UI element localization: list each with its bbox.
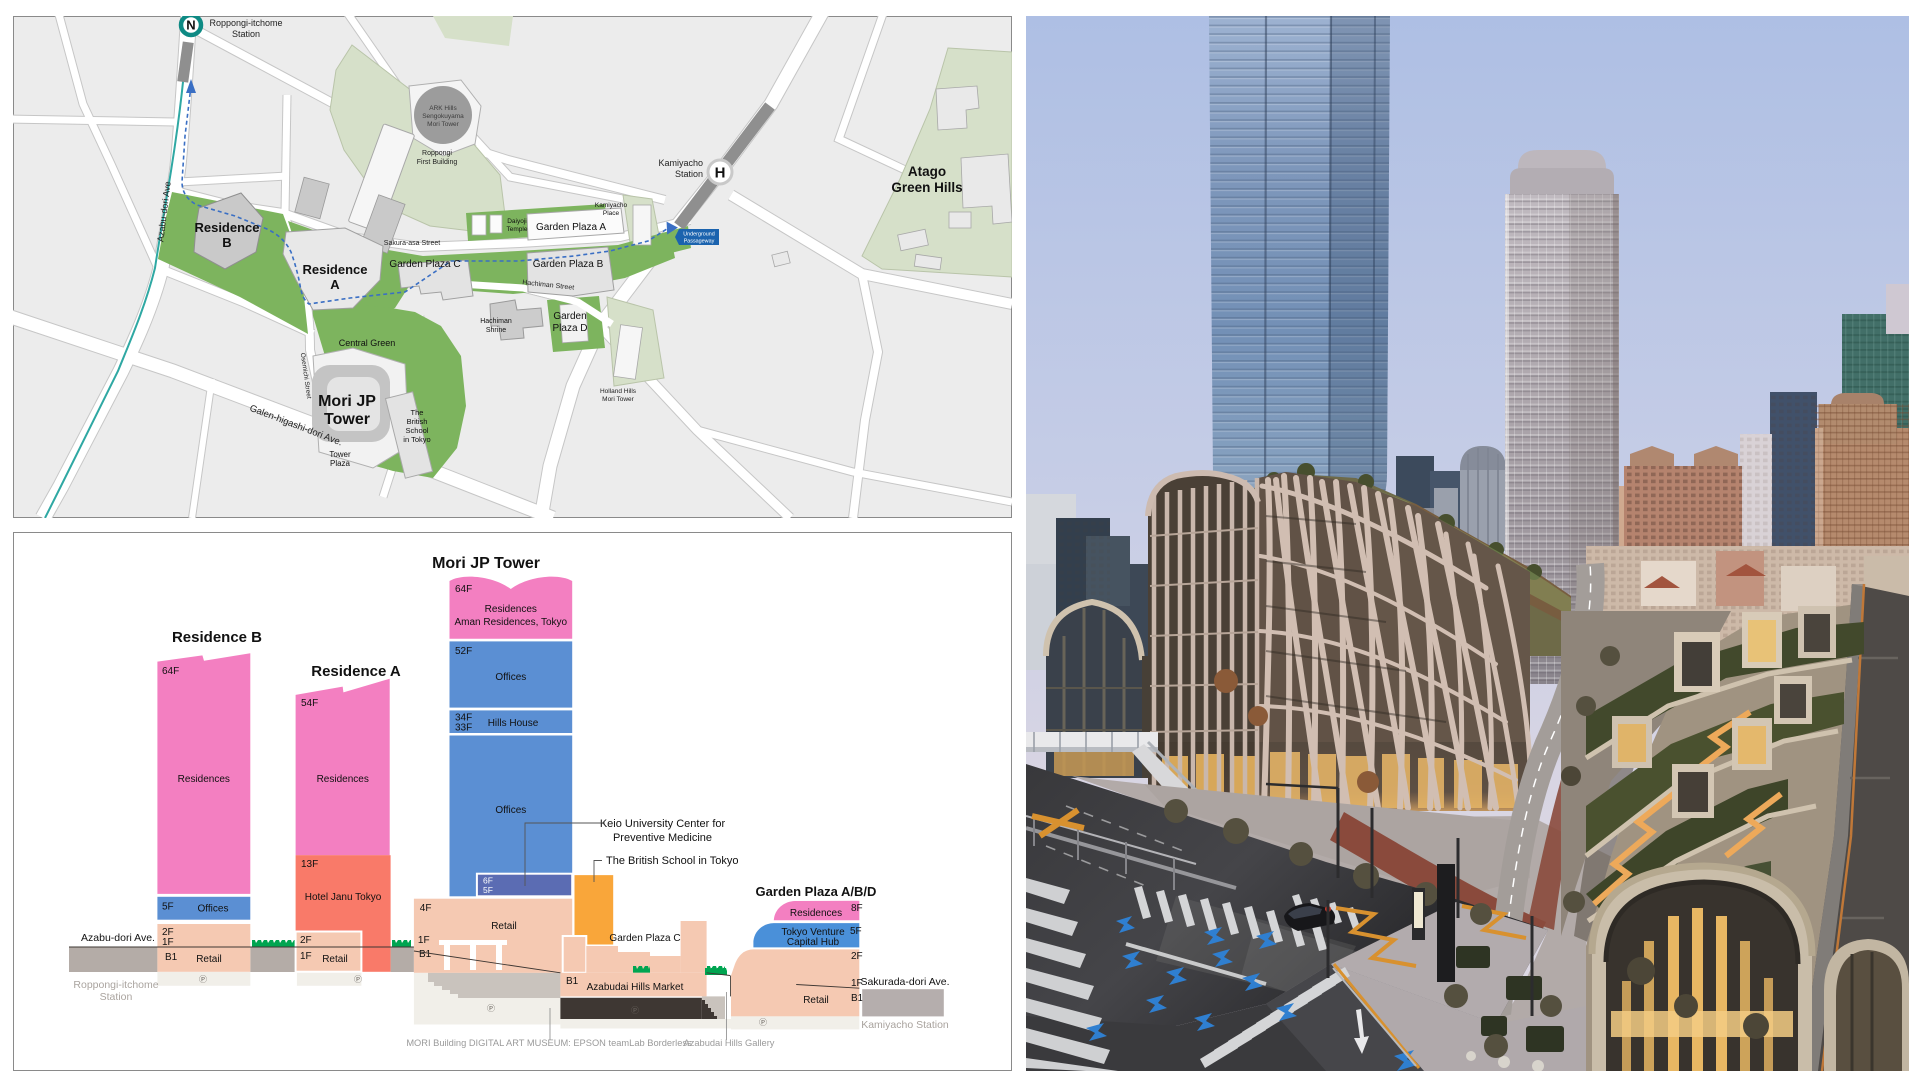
svg-text:B1: B1	[419, 949, 432, 960]
svg-text:Garden: Garden	[553, 311, 586, 322]
svg-text:Azabudai Hills Gallery: Azabudai Hills Gallery	[684, 1038, 775, 1048]
svg-text:A: A	[330, 277, 340, 292]
svg-text:Shrine: Shrine	[486, 327, 506, 334]
svg-text:1F: 1F	[300, 951, 312, 962]
svg-text:Offices: Offices	[198, 904, 229, 915]
svg-text:Residences: Residences	[317, 774, 369, 785]
svg-text:Garden Plaza C: Garden Plaza C	[389, 259, 460, 270]
svg-text:Mori Tower: Mori Tower	[427, 121, 460, 128]
svg-text:Retail: Retail	[491, 921, 517, 932]
svg-text:Offices: Offices	[495, 805, 526, 816]
svg-text:2F: 2F	[851, 951, 863, 962]
svg-text:Keio University Center for: Keio University Center for	[600, 818, 726, 830]
svg-text:Mori JP Tower: Mori JP Tower	[432, 555, 540, 572]
svg-text:Atago: Atago	[908, 164, 946, 179]
svg-text:Residence A: Residence A	[311, 663, 401, 680]
svg-text:Garden Plaza A: Garden Plaza A	[536, 222, 606, 233]
svg-text:School: School	[406, 426, 429, 435]
svg-text:Capital Hub: Capital Hub	[787, 937, 840, 948]
svg-text:4F: 4F	[420, 903, 432, 914]
svg-text:B: B	[222, 235, 231, 250]
svg-text:Temple: Temple	[507, 226, 528, 233]
svg-text:Residences: Residences	[485, 604, 537, 615]
svg-text:British: British	[407, 417, 428, 426]
svg-text:Sengokuyama: Sengokuyama	[422, 113, 464, 120]
svg-text:Plaza D: Plaza D	[552, 323, 587, 334]
svg-text:Residence B: Residence B	[172, 629, 262, 646]
svg-text:MORI Building DIGITAL ART MUSE: MORI Building DIGITAL ART MUSEUM: EPSON …	[406, 1038, 692, 1048]
svg-text:Garden Plaza A/B/D: Garden Plaza A/B/D	[756, 884, 877, 899]
svg-text:H: H	[715, 165, 726, 182]
svg-text:Retail: Retail	[322, 954, 348, 965]
svg-text:Hotel Janu Tokyo: Hotel Janu Tokyo	[305, 892, 382, 903]
svg-text:1F: 1F	[162, 937, 174, 948]
svg-text:Mori JP: Mori JP	[318, 393, 376, 410]
svg-text:Passageway: Passageway	[684, 239, 715, 245]
svg-text:Kamiyacho: Kamiyacho	[595, 202, 628, 209]
svg-text:Roppongi-itchome: Roppongi-itchome	[73, 979, 158, 991]
svg-text:8F: 8F	[851, 903, 863, 914]
svg-text:Station: Station	[675, 169, 703, 179]
svg-text:Hachiman: Hachiman	[480, 318, 512, 325]
svg-text:Tower: Tower	[324, 411, 370, 428]
svg-text:Offices: Offices	[495, 672, 526, 683]
svg-text:Green Hills: Green Hills	[891, 180, 962, 195]
svg-text:Residence: Residence	[194, 220, 259, 235]
svg-text:Hills House: Hills House	[488, 718, 539, 729]
svg-text:Plaza: Plaza	[330, 459, 351, 468]
svg-text:Place: Place	[603, 210, 620, 217]
svg-text:B1: B1	[851, 993, 864, 1004]
svg-text:33F: 33F	[455, 723, 472, 734]
svg-text:5F: 5F	[850, 926, 862, 937]
svg-text:Roppongi: Roppongi	[422, 150, 452, 157]
svg-text:ARK Hills: ARK Hills	[429, 105, 457, 112]
svg-text:Sakurada-dori Ave.: Sakurada-dori Ave.	[860, 976, 949, 988]
svg-text:5F: 5F	[162, 902, 174, 913]
svg-text:Underground: Underground	[683, 232, 714, 238]
svg-text:Ⓟ: Ⓟ	[487, 1004, 495, 1013]
svg-text:Aman Residences, Tokyo: Aman Residences, Tokyo	[454, 617, 567, 628]
svg-text:Preventive Medicine: Preventive Medicine	[613, 832, 712, 844]
svg-text:in Tokyo: in Tokyo	[403, 435, 430, 444]
svg-text:Residences: Residences	[790, 908, 842, 919]
svg-text:Ⓟ: Ⓟ	[199, 975, 207, 984]
svg-text:Ⓟ: Ⓟ	[631, 1006, 639, 1015]
svg-text:N: N	[186, 18, 195, 33]
svg-text:13F: 13F	[301, 859, 318, 870]
svg-text:The: The	[411, 408, 424, 417]
svg-text:Retail: Retail	[196, 954, 222, 965]
svg-text:Station: Station	[232, 29, 260, 39]
svg-text:Azabudai Hills Market: Azabudai Hills Market	[587, 982, 684, 993]
svg-text:2F: 2F	[300, 935, 312, 946]
svg-text:Kamiyacho Station: Kamiyacho Station	[861, 1019, 949, 1031]
svg-text:Central Green: Central Green	[339, 338, 396, 348]
svg-text:52F: 52F	[455, 646, 472, 657]
svg-text:1F: 1F	[418, 935, 430, 946]
svg-text:Tower: Tower	[329, 450, 351, 459]
svg-text:Garden Plaza B: Garden Plaza B	[533, 259, 604, 270]
svg-text:Garden Plaza C: Garden Plaza C	[609, 933, 680, 944]
svg-text:The British School in Tokyo: The British School in Tokyo	[606, 855, 738, 867]
svg-text:Residence: Residence	[302, 262, 367, 277]
svg-text:Roppongi-itchome: Roppongi-itchome	[209, 18, 282, 28]
svg-text:64F: 64F	[162, 666, 179, 677]
svg-text:5F: 5F	[483, 885, 493, 895]
svg-text:Kamiyacho: Kamiyacho	[658, 158, 703, 168]
svg-text:64F: 64F	[455, 584, 472, 595]
svg-text:Daiyoji: Daiyoji	[507, 218, 527, 225]
svg-text:First Building: First Building	[417, 159, 458, 166]
svg-text:Azabu-dori Ave.: Azabu-dori Ave.	[81, 932, 155, 944]
svg-text:B1: B1	[566, 976, 579, 987]
svg-text:Ⓟ: Ⓟ	[354, 975, 362, 984]
svg-text:Residences: Residences	[178, 774, 230, 785]
svg-text:54F: 54F	[301, 698, 318, 709]
svg-text:Holland Hills: Holland Hills	[600, 388, 637, 395]
svg-text:6F: 6F	[483, 876, 493, 886]
svg-text:B1: B1	[165, 952, 178, 963]
svg-text:Sakura-asa Street: Sakura-asa Street	[384, 240, 440, 247]
svg-text:Ⓟ: Ⓟ	[759, 1018, 767, 1027]
svg-text:Mori Tower: Mori Tower	[602, 396, 635, 403]
svg-text:Station: Station	[100, 991, 133, 1003]
svg-text:Retail: Retail	[803, 995, 829, 1006]
